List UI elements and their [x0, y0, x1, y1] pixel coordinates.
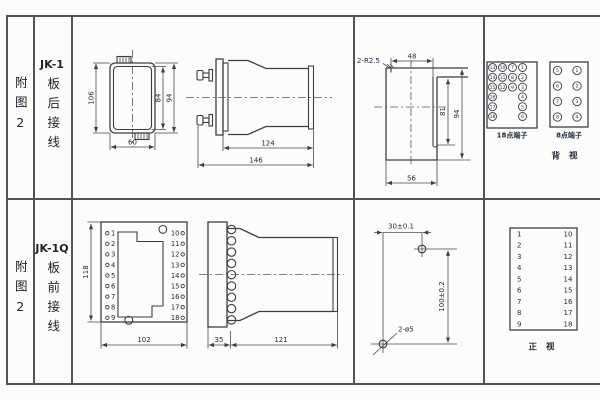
socket-pin-number: 4 [111, 261, 115, 269]
socket-pin [181, 232, 184, 235]
terminal-number: 10 [500, 65, 506, 71]
socket-pin [106, 242, 109, 245]
socket-pin [106, 316, 109, 319]
socket-pin-number: 2 [111, 240, 115, 248]
screw-bump [227, 225, 235, 233]
socket-pin-number: 8 [111, 304, 115, 312]
jk1-panel-cutout-drawing: 2-R2.5 48 81 94 56 [357, 53, 470, 187]
socket-pin-number: 16 [171, 293, 180, 301]
rear-terminal-views: 131071141182151293164175186 51627384 18点… [487, 62, 588, 162]
socket-pin [181, 305, 184, 308]
screw-bump [227, 282, 235, 290]
terminal-number: 15 [490, 85, 496, 91]
t18-grid: 131071141182151293164175186 [489, 64, 527, 121]
screw-bump [227, 259, 235, 267]
socket-pin [181, 263, 184, 266]
jk1q-side-view-drawing: 35 121 [199, 222, 344, 349]
socket-pin-number: 11 [171, 240, 180, 248]
terminal-number: 9 [511, 85, 514, 91]
table-number: 8 [517, 309, 521, 317]
table-number: 18 [564, 320, 573, 328]
rear-view-label: 背 视 [552, 151, 581, 162]
terminal-number: 6 [521, 114, 524, 120]
screw-bump [227, 237, 235, 245]
socket-pin [181, 274, 184, 277]
jk1q-front-view-drawing: 123456789 101112131415161718 118 102 [82, 222, 187, 349]
table-number: 16 [564, 298, 573, 306]
dim-48: 48 [408, 53, 417, 61]
socket-pin [106, 274, 109, 277]
dim-106: 106 [88, 91, 96, 105]
screw-bump [227, 304, 235, 312]
dim-100: 100±0.2 [438, 281, 446, 311]
table-number: 9 [517, 320, 521, 328]
socket-pin [181, 242, 184, 245]
terminal-number: 13 [490, 65, 496, 71]
socket-pin-number: 15 [171, 282, 180, 290]
socket-right-terminals: 101112131415161718 [171, 230, 185, 323]
dim-94-cutout: 94 [453, 109, 461, 118]
table-number: 11 [564, 242, 573, 250]
terminal-number: 4 [521, 95, 524, 101]
front-terminal-table: 123456789 101112131415161718 正 视 [510, 228, 577, 353]
terminal-number: 16 [490, 95, 496, 101]
t8-label: 8点端子 [556, 131, 582, 140]
socket-pin [106, 253, 109, 256]
table-number: 3 [517, 253, 521, 261]
dim-30: 30±0.1 [388, 223, 414, 231]
table-number: 1 [517, 231, 521, 239]
dim-146: 146 [249, 157, 263, 165]
dim-2-r2p5: 2-R2.5 [357, 57, 380, 65]
dim-121: 121 [274, 336, 287, 344]
socket-pin [106, 232, 109, 235]
socket-pin-number: 18 [171, 314, 180, 322]
table-number: 2 [517, 242, 521, 250]
table-number: 15 [564, 287, 573, 295]
front-view-label: 正 视 [529, 342, 558, 353]
socket-pin [181, 253, 184, 256]
drill-template-drawing: 30±0.1 100±0.2 2-ø5 [371, 223, 457, 356]
socket-pin [181, 316, 184, 319]
socket-left-terminals: 123456789 [106, 230, 116, 323]
table-number: 5 [517, 275, 521, 283]
table-number: 10 [564, 231, 573, 239]
terminal-number: 7 [556, 99, 559, 105]
screw-bump [227, 293, 235, 301]
terminal-number: 2 [576, 84, 579, 90]
terminal-number: 3 [521, 85, 524, 91]
table-number: 7 [517, 298, 521, 306]
terminal-number: 1 [521, 65, 524, 71]
table-number: 13 [564, 264, 573, 272]
dim-118: 118 [82, 265, 90, 278]
terminal-number: 11 [500, 75, 506, 81]
terminal-number: 3 [576, 99, 579, 105]
table-number: 6 [517, 287, 522, 295]
dim-56: 56 [407, 175, 416, 183]
dim-124: 124 [261, 140, 275, 148]
drawings-canvas: 106 84 94 60 124 146 [0, 0, 600, 400]
terminal-number: 8 [556, 115, 559, 121]
dim-102: 102 [137, 336, 150, 344]
socket-pin-number: 6 [111, 282, 115, 290]
drawing-sheet: 附图2 JK-1 板后接线 附图2 JK-1Q 板前接线 [0, 0, 600, 400]
dim-35: 35 [215, 336, 224, 344]
terminal-number: 8 [511, 75, 514, 81]
socket-pin-number: 1 [111, 230, 115, 238]
socket-pin [181, 284, 184, 287]
table-number: 14 [564, 275, 573, 283]
dim-81: 81 [439, 107, 447, 116]
socket-pin-number: 13 [171, 261, 180, 269]
table-number: 4 [517, 264, 522, 272]
front-table-left: 123456789 [517, 231, 522, 329]
socket-pin [106, 295, 109, 298]
terminal-number: 17 [490, 104, 496, 110]
dim-2-o5: 2-ø5 [398, 326, 414, 334]
terminal-number: 6 [556, 84, 559, 90]
socket-pin-number: 17 [171, 304, 180, 312]
socket-pin [106, 284, 109, 287]
socket-pin-number: 10 [171, 230, 180, 238]
socket-pin-number: 9 [111, 314, 115, 322]
dim-94-front: 94 [166, 93, 174, 102]
dim-60: 60 [128, 139, 137, 147]
jk1-front-view-drawing: 106 84 94 60 [88, 50, 179, 150]
socket-pin [106, 263, 109, 266]
terminal-number: 12 [500, 85, 506, 91]
t18-label: 18点端子 [497, 131, 528, 140]
socket-pin-number: 7 [111, 293, 115, 301]
terminal-number: 1 [576, 68, 579, 74]
terminal-number: 4 [576, 115, 579, 121]
terminal-number: 5 [556, 68, 559, 74]
terminal-number: 18 [490, 114, 496, 120]
socket-pin-number: 14 [171, 272, 180, 280]
screw-bump [227, 248, 235, 256]
socket-pin-number: 5 [111, 272, 115, 280]
socket-pin [106, 305, 109, 308]
terminal-number: 2 [521, 75, 524, 81]
front-table-right: 101112131415161718 [564, 231, 573, 329]
t8-grid: 51627384 [553, 66, 581, 121]
socket-pin-number: 12 [171, 251, 180, 259]
socket-pin-number: 3 [111, 251, 115, 259]
table-number: 12 [564, 253, 573, 261]
dim-84: 84 [155, 93, 163, 102]
terminal-number: 14 [490, 75, 496, 81]
socket-pin [181, 295, 184, 298]
jk1-side-view-drawing: 124 146 [186, 59, 332, 168]
terminal-number: 7 [511, 65, 514, 71]
terminal-number: 5 [521, 104, 524, 110]
table-number: 17 [564, 309, 573, 317]
